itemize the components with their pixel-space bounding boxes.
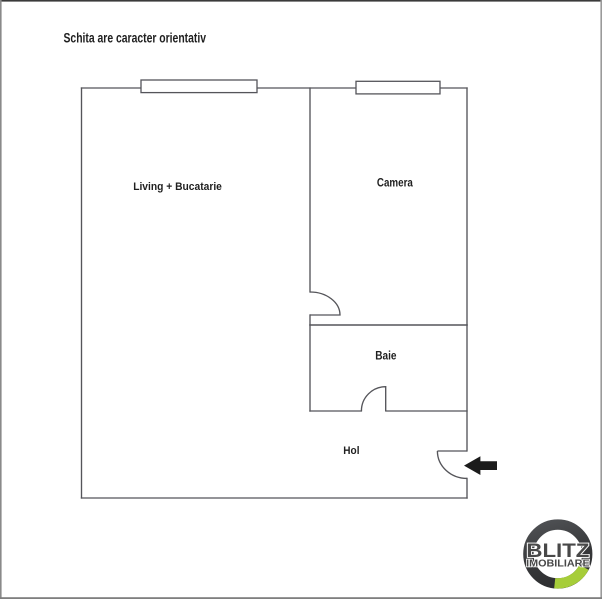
svg-text:Camera: Camera <box>377 176 413 190</box>
svg-text:Schita are caracter orientativ: Schita are caracter orientativ <box>64 31 207 46</box>
svg-text:Living + Bucatarie: Living + Bucatarie <box>133 181 222 193</box>
svg-text:Hol: Hol <box>343 445 359 457</box>
svg-text:IMOBILIARE: IMOBILIARE <box>526 558 590 569</box>
svg-text:Baie: Baie <box>375 350 397 363</box>
